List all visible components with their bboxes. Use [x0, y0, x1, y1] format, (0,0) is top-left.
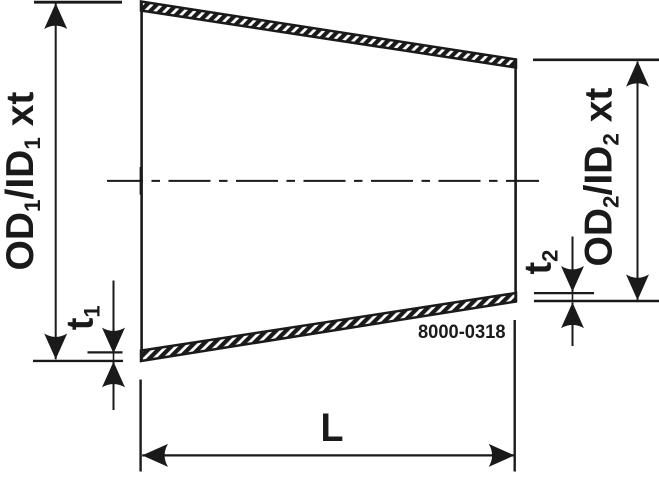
svg-text:8000-0318: 8000-0318: [418, 321, 506, 343]
svg-text:OD1/ID1 xt: OD1/ID1 xt: [0, 92, 45, 271]
svg-text:OD2/ID2 xt: OD2/ID2 xt: [578, 88, 624, 267]
svg-text:t1: t1: [60, 305, 105, 330]
svg-text:t2: t2: [518, 250, 563, 275]
svg-text:L: L: [321, 406, 344, 450]
